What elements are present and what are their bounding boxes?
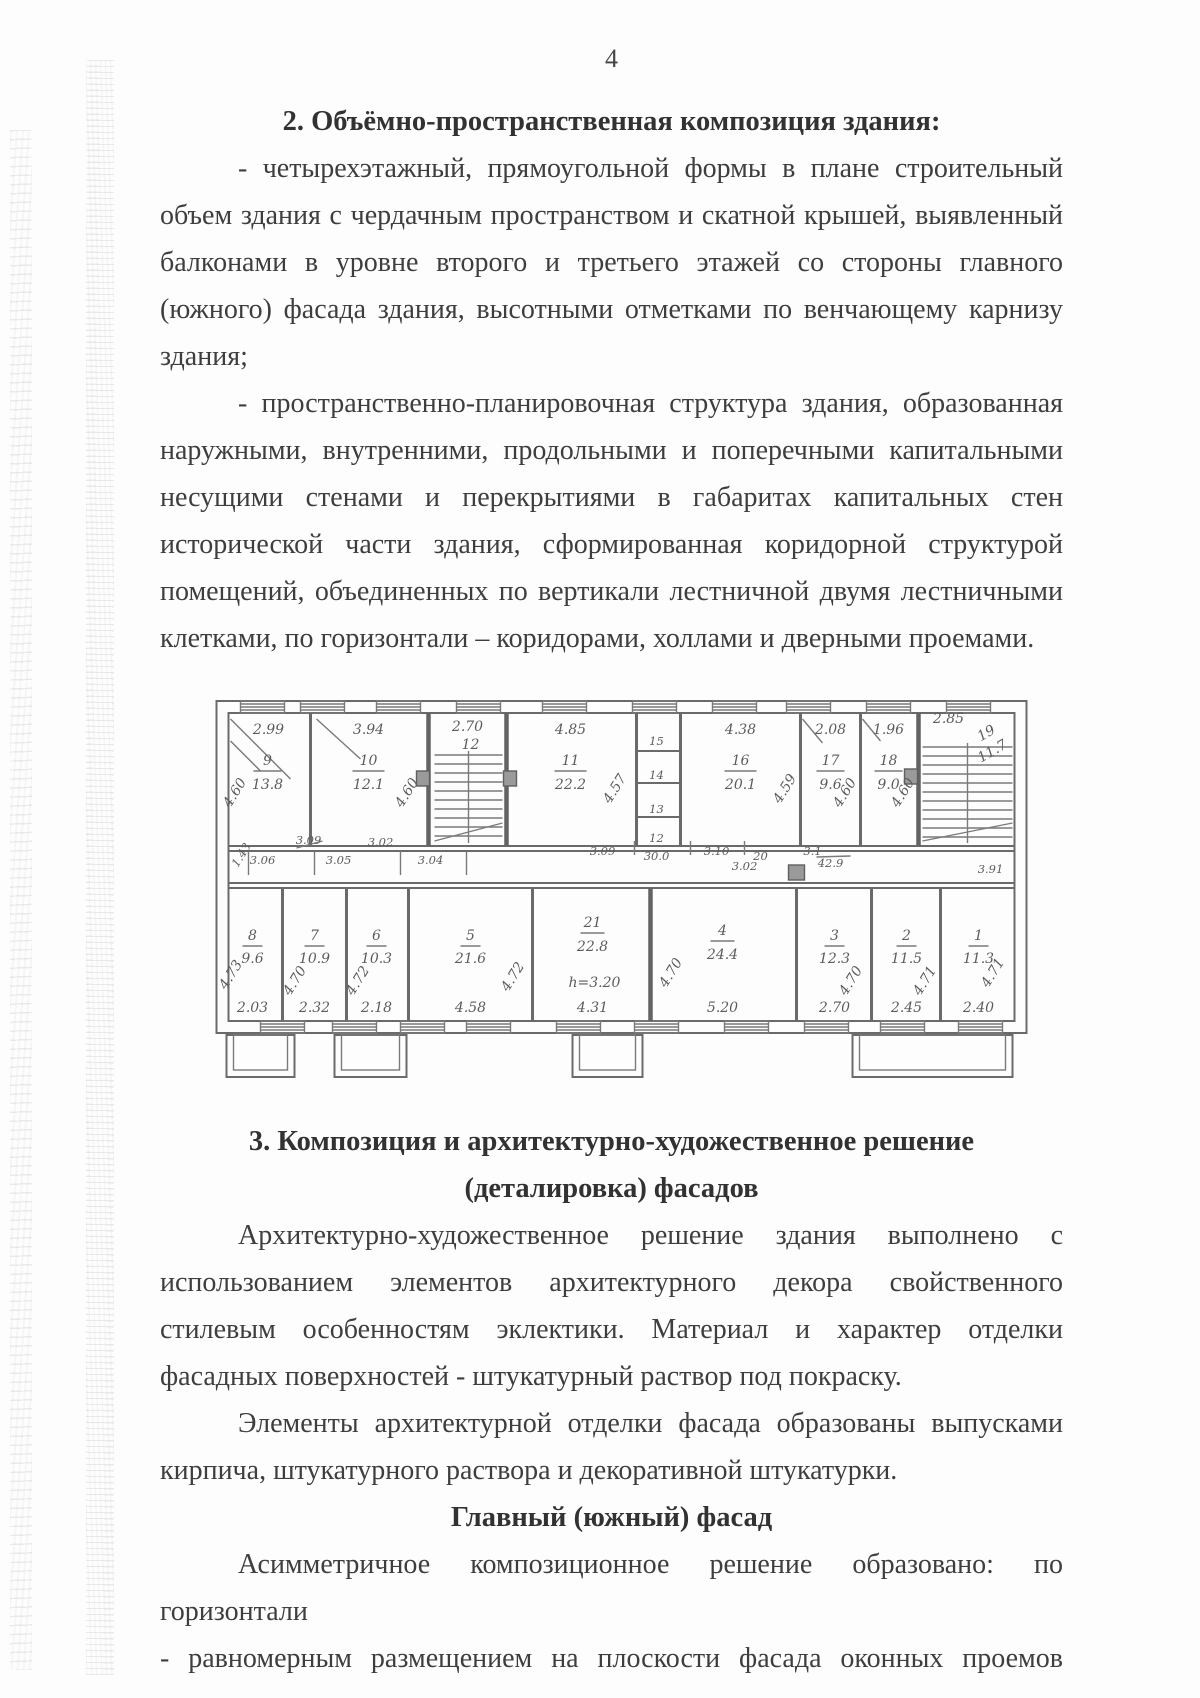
dimension-label: 3.91 [978, 862, 1004, 876]
room-area: 22.8 [576, 939, 608, 955]
dimension-label: 42.9 [817, 856, 844, 870]
dimension-label: 4.60 [220, 775, 251, 811]
building-outline [217, 701, 1027, 1033]
page-number: 4 [160, 44, 1063, 74]
dimension-label: 4.70 [836, 963, 867, 999]
dimension-label: 3.04 [418, 853, 444, 867]
dimension-label: 2.40 [962, 1000, 994, 1016]
room-number: 7 [310, 928, 319, 944]
dimension-label: 3.09 [296, 833, 322, 847]
dimension-label: 4.71 [910, 963, 941, 999]
scan-noise-band [86, 60, 114, 1675]
room-number: 21 [583, 915, 602, 931]
room-area: 12.3 [819, 951, 850, 967]
dimension-label: 4.59 [770, 771, 801, 807]
dimension-label: 2.70 [451, 719, 483, 735]
section-2: 2. Объёмно-пространственная композиция з… [160, 98, 1063, 662]
ceiling-height-label: h=3.20 [569, 975, 621, 991]
scan-noise-band [10, 130, 32, 1670]
dimension-label: 2.03 [236, 1000, 268, 1016]
section-3: 3. Композиция и архитектурно-художествен… [160, 1118, 1063, 1682]
room-number: 17 [822, 753, 840, 769]
section3-paragraph-4: - равномерным размещением на плоскости ф… [160, 1635, 1063, 1682]
dimension-label: 3.02 [368, 835, 394, 849]
dimension-label: 2.85 [932, 711, 964, 727]
dimension-label: 4.85 [554, 722, 586, 738]
room-number: 13 [649, 802, 664, 816]
room-number: 5 [466, 928, 475, 944]
floor-plan-drawing: 9 13.8 2.99 4.60 10 12.1 3.94 4.60 11 22… [203, 643, 1041, 1085]
dimension-label: 3.06 [250, 853, 276, 867]
right-staircase [923, 743, 1013, 843]
document-page: 4 2. Объёмно-пространственная композиция… [0, 0, 1200, 1698]
dimension-label: 2.70 [818, 1000, 850, 1016]
room-area: 9.6 [241, 951, 263, 967]
dimension-label: 3.94 [353, 722, 384, 738]
dimension-label: 3.05 [326, 853, 352, 867]
dimension-label: 4.72 [498, 959, 529, 995]
section2-heading: 2. Объёмно-пространственная композиция з… [160, 98, 1063, 145]
room-area: 13.8 [252, 777, 283, 793]
dimension-label: 4.38 [724, 722, 756, 738]
room-number: 15 [649, 734, 664, 748]
section3-paragraph-3: Асимметричное композиционное решение обр… [160, 1541, 1063, 1635]
dimension-label: 4.58 [454, 1000, 486, 1016]
dimension-label: 5.20 [707, 1000, 738, 1016]
dimension-label: 2.18 [360, 1000, 392, 1016]
dimension-label: 30.0 [644, 849, 670, 863]
section2-paragraph-1: - четырехэтажный, прямоугольной формы в … [160, 145, 1063, 380]
dimension-label: 3.02 [732, 859, 758, 873]
dimension-label: 4.57 [600, 771, 631, 807]
dimension-label: 3.10 [704, 844, 730, 858]
room-number: 12 [649, 831, 664, 845]
section3-heading-line1: 3. Композиция и архитектурно-художествен… [160, 1118, 1063, 1165]
room-number: 2 [901, 928, 911, 944]
dimension-label: 2.99 [252, 722, 284, 738]
room-area: 20.1 [724, 777, 756, 793]
room-number: 18 [880, 753, 898, 769]
room-number: 4 [717, 923, 727, 939]
section2-paragraph-2: - пространственно-планировочная структур… [160, 380, 1063, 662]
section3-subheading: Главный (южный) фасад [160, 1494, 1063, 1541]
balconies [227, 1035, 1013, 1077]
room-number: 8 [248, 928, 257, 944]
section3-paragraph-1: Архитектурно-художественное решение здан… [160, 1212, 1063, 1400]
room-number: 6 [372, 928, 381, 944]
room-number: 16 [732, 753, 750, 769]
dimension-label: 2.45 [890, 1000, 922, 1016]
room-area: 22.2 [554, 777, 586, 793]
room-area: 11.5 [891, 951, 922, 967]
section3-paragraph-2: Элементы архитектурной отделки фасада об… [160, 1400, 1063, 1494]
room-number: 14 [649, 768, 664, 782]
dimension-label: 4.70 [280, 963, 311, 999]
room-area: 21.6 [454, 951, 486, 967]
dimension-label: 2.08 [814, 722, 846, 738]
room-number: 11 [562, 753, 580, 769]
room-number: 12 [462, 737, 480, 753]
dimension-label: 1.96 [873, 722, 904, 738]
section3-heading-line2: (деталировка) фасадов [160, 1165, 1063, 1212]
room-number: 10 [360, 753, 378, 769]
room-area: 10.3 [361, 951, 392, 967]
left-staircase [435, 751, 503, 843]
dimension-label: 4.70 [656, 955, 687, 991]
room-area: 10.9 [299, 951, 330, 967]
room-number: 3 [830, 928, 839, 944]
room-area: 24.4 [706, 947, 738, 963]
room-number: 9 [263, 753, 272, 769]
room-number: 1 [974, 928, 983, 944]
room-area: 12.1 [353, 777, 384, 793]
dimension-label: 3.09 [590, 844, 616, 858]
dimension-label: 2.32 [298, 1000, 330, 1016]
dimension-label: 4.31 [576, 1000, 608, 1016]
